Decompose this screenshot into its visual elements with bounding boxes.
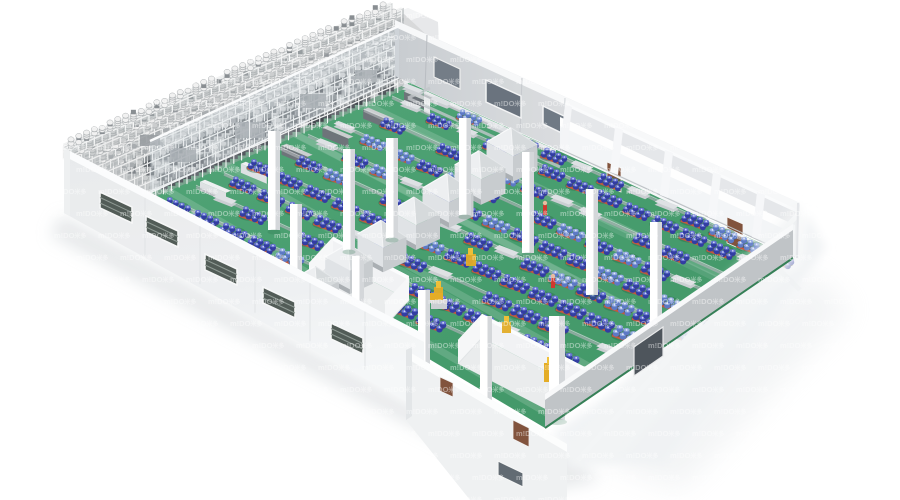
svg-text:m!DO米多: m!DO米多 xyxy=(890,55,900,64)
svg-text:m!DO米多: m!DO米多 xyxy=(890,451,900,460)
svg-text:m!DO米多: m!DO米多 xyxy=(890,143,900,152)
svg-text:m!DO米多: m!DO米多 xyxy=(890,495,900,500)
svg-text:m!DO米多: m!DO米多 xyxy=(890,99,900,108)
svg-text:m!DO米多: m!DO米多 xyxy=(890,319,900,328)
svg-text:m!DO米多: m!DO米多 xyxy=(890,275,900,284)
svg-text:m!DO米多: m!DO米多 xyxy=(890,231,900,240)
svg-text:m!DO米多: m!DO米多 xyxy=(890,363,900,372)
svg-text:m!DO米多: m!DO米多 xyxy=(890,407,900,416)
svg-text:m!DO米多: m!DO米多 xyxy=(890,187,900,196)
svg-text:m!DO米多: m!DO米多 xyxy=(890,11,900,20)
